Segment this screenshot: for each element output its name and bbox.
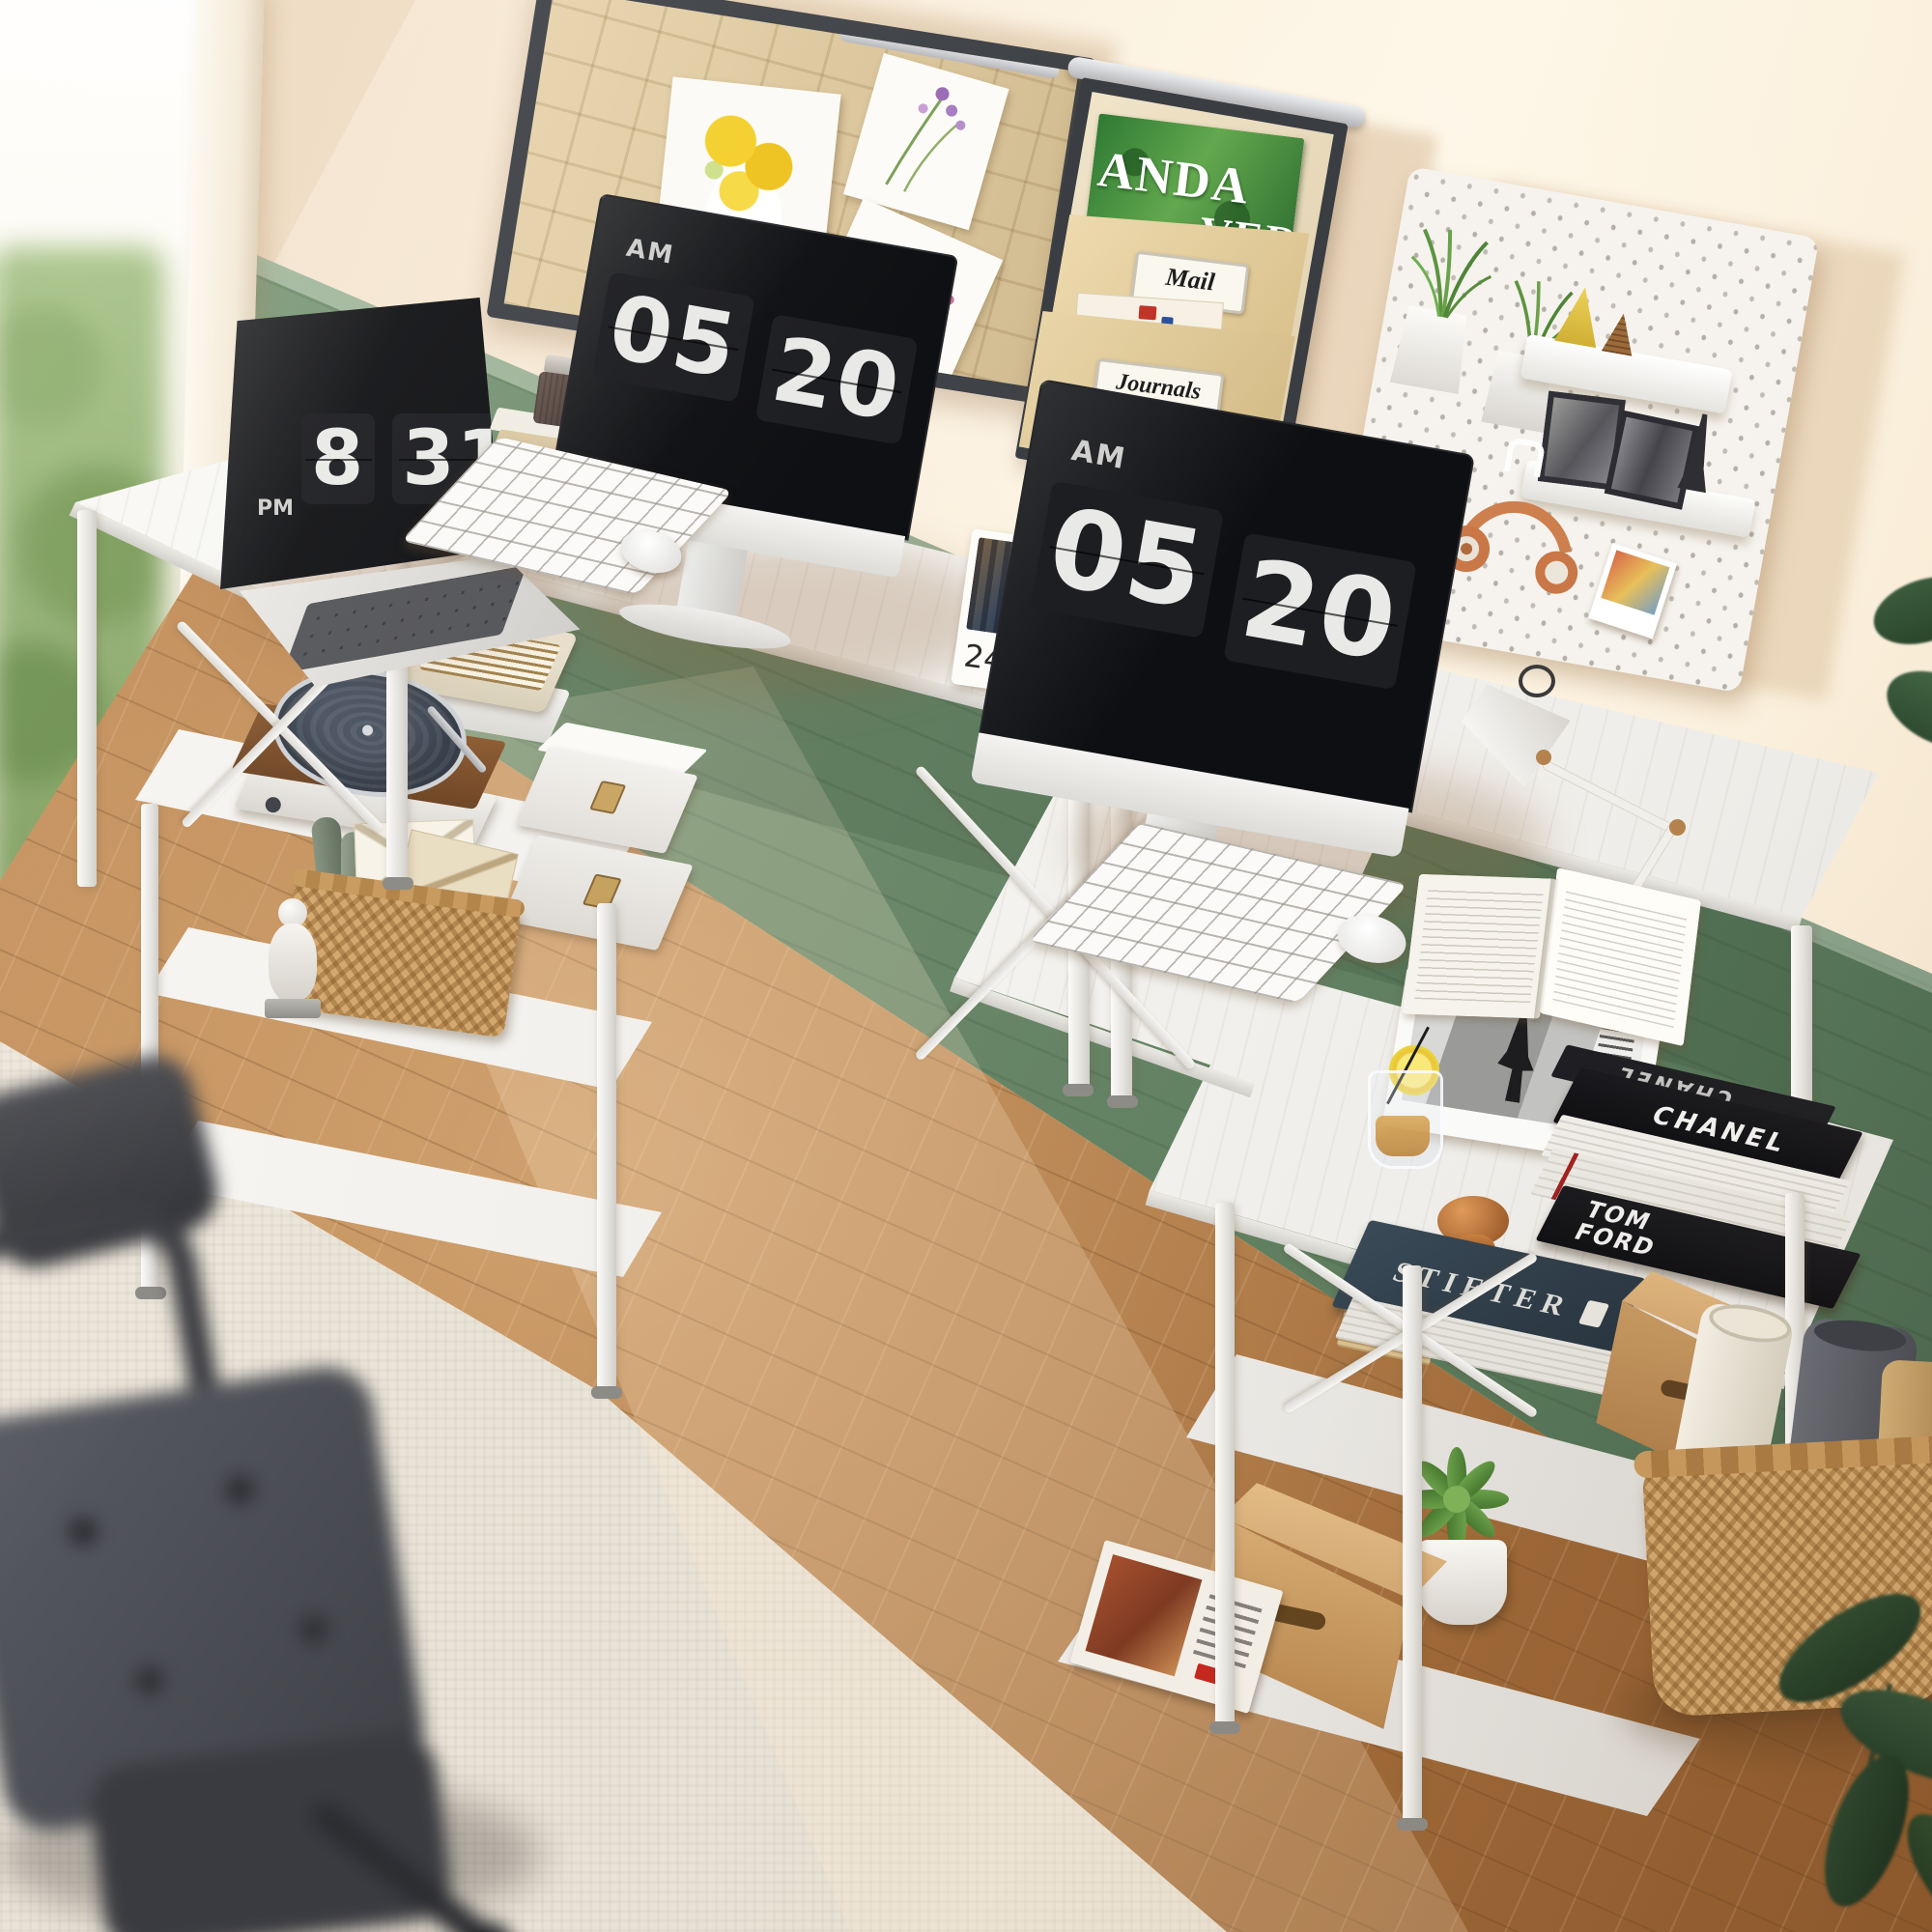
monitor-right-minute: 20 bbox=[1223, 532, 1416, 690]
lamp-joint-elbow bbox=[1669, 819, 1686, 836]
magazine-title-line1: ANDA bbox=[1094, 141, 1253, 216]
stamp-red bbox=[1139, 305, 1157, 320]
cocktail-glass bbox=[1368, 1065, 1439, 1165]
open-book-left-page bbox=[1402, 874, 1556, 1019]
figurine bbox=[253, 898, 334, 1034]
figurine-base bbox=[265, 999, 321, 1018]
left-shelf-leg-right bbox=[597, 903, 616, 1391]
corner-plant bbox=[1729, 1575, 1932, 1932]
right-shelf-leg-1 bbox=[1215, 1203, 1235, 1724]
right-shelf-foot-2 bbox=[1397, 1818, 1428, 1831]
home-office-scene: ANDA VER Mail Journals bbox=[0, 0, 1932, 1932]
laptop-clock-hour: 8 bbox=[301, 413, 375, 504]
laptop-keys bbox=[283, 565, 527, 673]
lamp-arm-upper bbox=[1541, 759, 1676, 835]
figurine-body bbox=[269, 923, 317, 1001]
leg-foot-3 bbox=[383, 877, 413, 890]
monitor-left-period: AM bbox=[624, 234, 676, 270]
fabric-roll-top bbox=[1812, 1316, 1908, 1355]
right-shelf-foot-1 bbox=[1209, 1721, 1240, 1734]
leg-foot-2 bbox=[1107, 1095, 1138, 1108]
office-chair bbox=[0, 1072, 522, 1932]
laptop-clock-period: PM bbox=[257, 497, 294, 521]
leg-foot-1 bbox=[1063, 1084, 1094, 1096]
glass-body bbox=[1368, 1070, 1443, 1169]
open-book-right-page bbox=[1540, 867, 1701, 1046]
white-box-1-clasp bbox=[589, 781, 626, 814]
left-shelf-foot-2 bbox=[591, 1386, 622, 1399]
polaroid-image bbox=[1601, 550, 1669, 614]
open-book bbox=[1396, 852, 1709, 1059]
succulent-center bbox=[1443, 1486, 1470, 1513]
lamp-loop bbox=[1519, 665, 1555, 697]
lamp-joint-top bbox=[1536, 750, 1551, 765]
desk-leg-return-left bbox=[77, 510, 97, 887]
mail-label: Mail bbox=[1135, 259, 1246, 300]
planter-grass-1 bbox=[1392, 217, 1504, 329]
bottom-magazine-art bbox=[1085, 1554, 1202, 1676]
right-shelf-leg-2 bbox=[1403, 1265, 1422, 1821]
monitor-right-hour: 05 bbox=[1031, 481, 1224, 639]
blue-book-logo bbox=[1578, 1300, 1609, 1328]
monitor-right-period: AM bbox=[1069, 434, 1129, 476]
monitor-right-clock: 05 20 bbox=[1027, 481, 1419, 691]
turntable-spindle bbox=[361, 724, 374, 737]
monitor-left-clock: 05 20 bbox=[589, 271, 921, 445]
monitor-left-minute: 20 bbox=[755, 314, 919, 445]
photo-frame-2-image bbox=[1611, 417, 1692, 503]
monitor-left-hour: 05 bbox=[592, 271, 755, 403]
glass-liquid bbox=[1376, 1116, 1430, 1156]
